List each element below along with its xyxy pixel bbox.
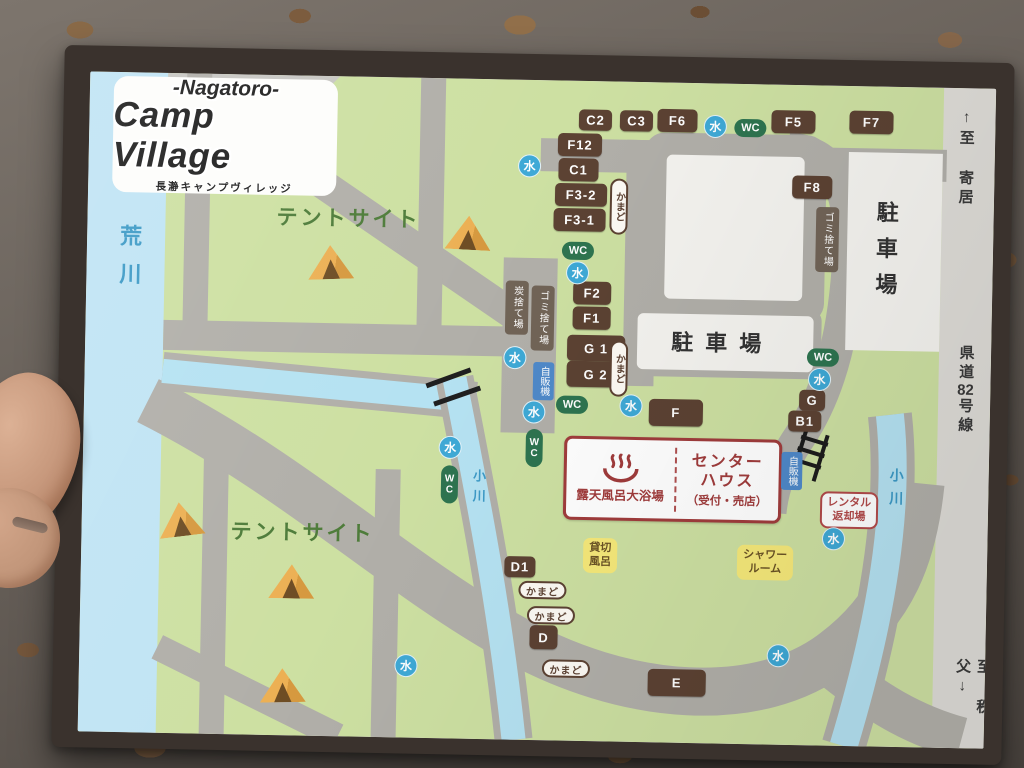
road-label: ↑至 寄居 xyxy=(954,109,977,208)
tent-icon xyxy=(307,244,354,280)
onsen-icon xyxy=(598,453,643,484)
site-badge-f1: F1 xyxy=(572,306,610,330)
map-sheet: -Nagatoro- Camp Village 長瀞キャンプヴィレッジ 露天風呂… xyxy=(51,45,1014,765)
site-badge-f5: F5 xyxy=(771,110,815,134)
site-badge-f7: F7 xyxy=(849,111,893,135)
kamado-label: かまど xyxy=(609,178,628,234)
wc-marker: WC xyxy=(562,242,594,261)
facility-label: 貸切風呂 xyxy=(583,538,618,573)
water-marker: 水 xyxy=(767,644,790,667)
site-badge-g: G xyxy=(799,390,825,411)
map-title-subtitle: 長瀞キャンプヴィレッジ xyxy=(155,179,292,197)
facility-label: シャワールーム xyxy=(737,545,794,581)
site-badge-f8: F8 xyxy=(792,175,832,199)
site-badge-c2: C2 xyxy=(579,109,612,131)
vending-machine-label: 自販機 xyxy=(533,362,555,400)
wc-marker: WC xyxy=(807,348,839,367)
water-marker: 水 xyxy=(438,436,461,459)
parking-label: 駐車場 xyxy=(868,200,902,309)
rental-line2: 返却場 xyxy=(827,510,871,525)
water-marker: 水 xyxy=(808,368,831,391)
photo-background: -Nagatoro- Camp Village 長瀞キャンプヴィレッジ 露天風呂… xyxy=(0,0,1024,768)
map-title-line2: Camp Village xyxy=(112,95,337,179)
utility-label: 炭捨て場 xyxy=(505,280,529,334)
road-label: 至 秩父↓ xyxy=(951,658,994,719)
water-marker: 水 xyxy=(619,394,642,417)
kamado-label: かまど xyxy=(609,340,628,396)
wc-marker: WC xyxy=(734,119,766,138)
center-house-subtitle: （受付・売店） xyxy=(687,492,768,510)
site-badge-f6: F6 xyxy=(657,109,697,133)
site-badge-e: E xyxy=(647,669,706,697)
water-marker: 水 xyxy=(522,400,545,423)
utility-label: ゴミ捨て場 xyxy=(531,285,555,350)
tent-icon xyxy=(259,668,306,703)
river-label: 荒川 xyxy=(112,224,145,301)
road-label: 県道82号線 xyxy=(954,345,977,436)
tent-site-label: テントサイト xyxy=(276,201,421,234)
center-house-sign: 露天風呂大浴場 センター ハウス （受付・売店） xyxy=(563,436,783,524)
water-marker: 水 xyxy=(394,654,417,677)
kamado-label: かまど xyxy=(518,581,566,600)
map-markers-layer: -Nagatoro- Camp Village 長瀞キャンプヴィレッジ 露天風呂… xyxy=(78,71,997,748)
site-badge-c3: C3 xyxy=(620,110,653,132)
tent-site-label: テントサイト xyxy=(230,515,375,548)
wc-marker: WC xyxy=(525,429,543,467)
water-marker: 水 xyxy=(704,115,727,138)
site-badge-d1: D1 xyxy=(504,556,535,578)
onsen-panel: 露天風呂大浴場 xyxy=(566,439,675,519)
kamado-label: かまど xyxy=(542,659,590,678)
water-marker: 水 xyxy=(503,346,526,369)
site-badge-f12: F12 xyxy=(558,133,602,157)
kamado-label: かまど xyxy=(527,606,575,625)
center-house-panel: センター ハウス （受付・売店） xyxy=(675,441,779,521)
site-badge-f: F xyxy=(649,399,704,427)
site-badge-f3-1: F3-1 xyxy=(553,208,605,232)
river-label: 小川 xyxy=(886,468,907,514)
hand-thumb xyxy=(0,372,96,640)
rental-return-sign: レンタル 返却場 xyxy=(820,491,879,529)
tent-icon xyxy=(444,215,492,251)
site-badge-f3-2: F3-2 xyxy=(555,183,607,207)
site-badge-b1: B1 xyxy=(788,410,821,432)
tent-icon xyxy=(156,500,206,539)
open-air-bath-label: 露天風呂大浴場 xyxy=(576,484,664,505)
center-house-name-line2: ハウス xyxy=(700,471,754,491)
vending-machine-label: 自販機 xyxy=(781,452,803,490)
utility-label: ゴミ捨て場 xyxy=(815,207,839,272)
water-marker: 水 xyxy=(518,154,541,177)
rental-line1: レンタル xyxy=(827,495,871,510)
parking-label: 駐車場 xyxy=(671,325,774,359)
wc-marker: WC xyxy=(441,465,459,503)
water-marker: 水 xyxy=(822,527,845,550)
map-area: -Nagatoro- Camp Village 長瀞キャンプヴィレッジ 露天風呂… xyxy=(78,71,997,748)
river-label: 小川 xyxy=(468,469,488,509)
map-title-box: -Nagatoro- Camp Village 長瀞キャンプヴィレッジ xyxy=(112,76,338,196)
site-badge-c1: C1 xyxy=(558,158,598,182)
center-house-name-line1: センター xyxy=(692,452,764,473)
wc-marker: WC xyxy=(556,395,588,414)
tent-icon xyxy=(268,564,315,599)
site-badge-d: D xyxy=(529,625,557,650)
site-badge-f2: F2 xyxy=(573,281,611,305)
